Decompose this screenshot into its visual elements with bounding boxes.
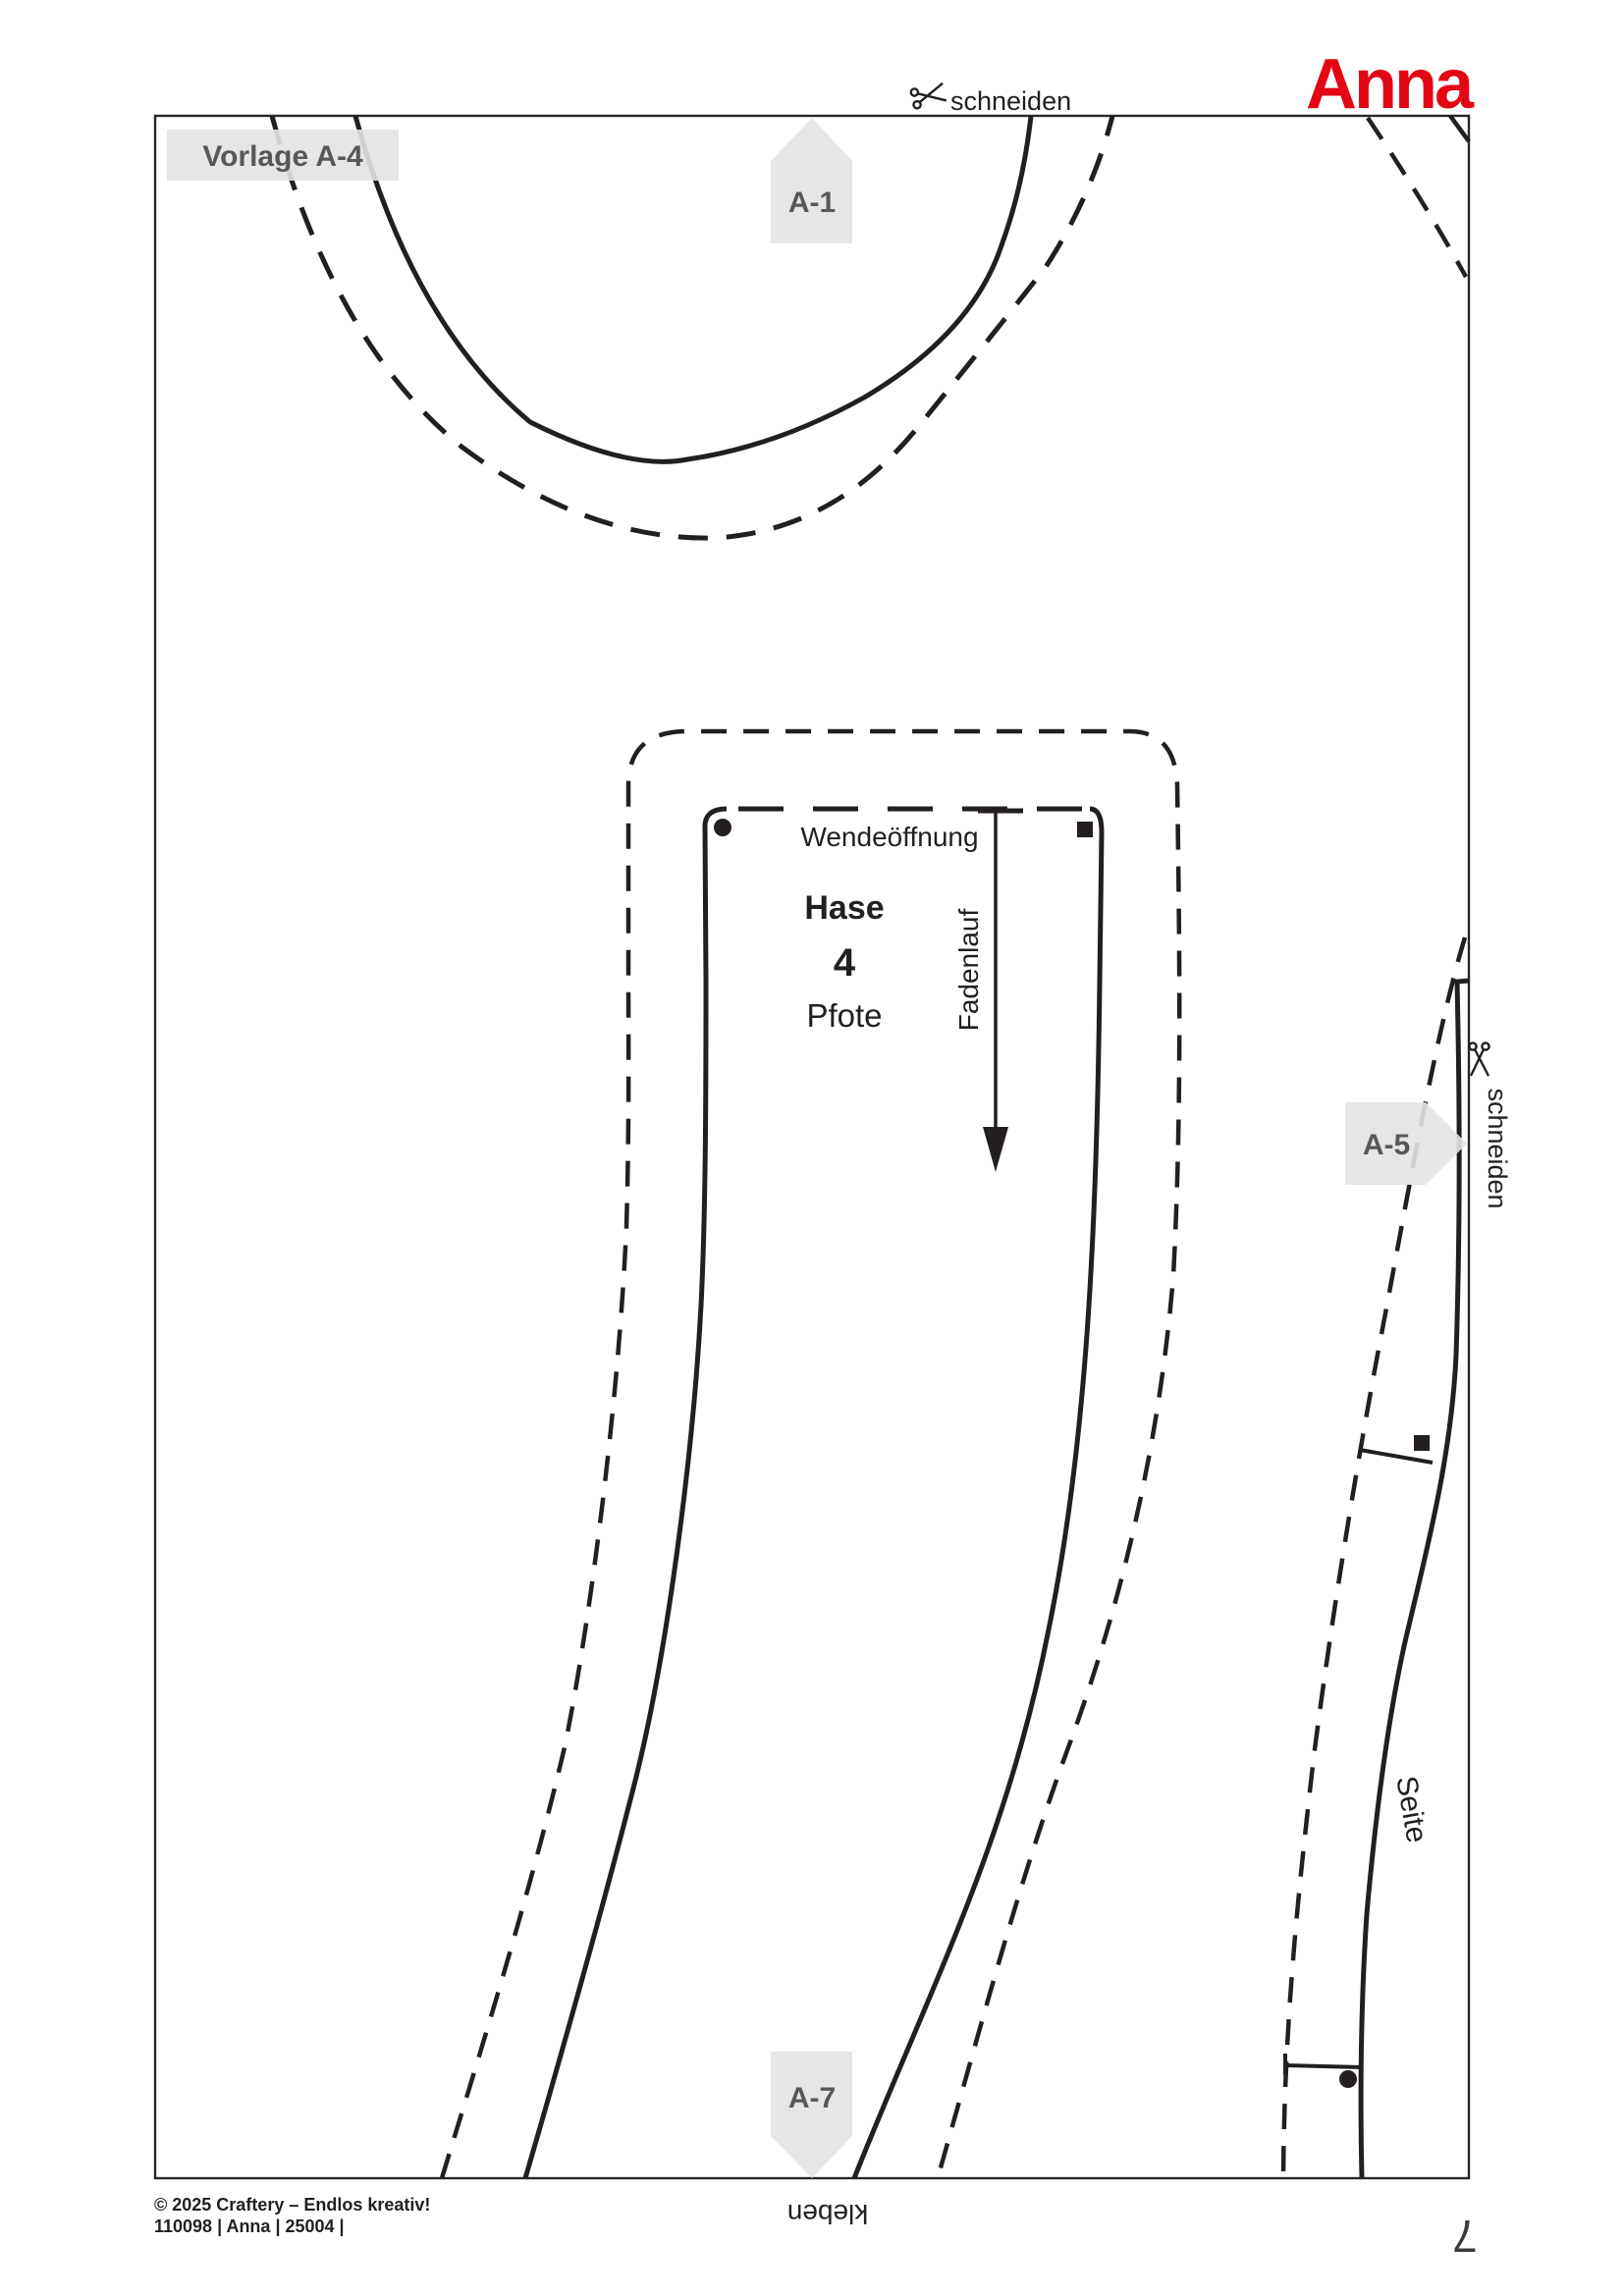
piece-name-label: Pfote — [806, 997, 882, 1034]
pattern-sheet: Vorlage A-4 A-1 A-5 A-7 schneiden Anna W… — [0, 0, 1624, 2296]
marker-a7-arrow — [771, 2052, 852, 2178]
paw-square-marker — [1077, 822, 1093, 837]
cut-label-top: schneiden — [950, 86, 1071, 116]
paw-seam-line — [442, 731, 1179, 2178]
page-number: 7 — [1452, 2211, 1478, 2262]
marker-a5-label: A-5 — [1363, 1129, 1410, 1161]
brand-logo: Anna — [1306, 45, 1475, 124]
opening-label: Wendeöffnung — [800, 822, 978, 852]
template-label: Vorlage A-4 — [202, 140, 363, 173]
side-dot-marker — [1339, 2070, 1357, 2088]
paw-dot-marker — [714, 819, 731, 836]
piece-number-label: 4 — [834, 941, 856, 985]
footer-product-code: 110098 | Anna | 25004 | — [154, 2216, 345, 2236]
corner-piece-seam-line — [1368, 118, 1466, 277]
side-upper-notch-line — [1360, 1450, 1433, 1463]
scissors-icon-right — [1469, 1042, 1489, 1076]
cut-label-right: schneiden — [1483, 1088, 1512, 1208]
footer-copyright: © 2025 Craftery – Endlos kreativ! — [154, 2195, 430, 2215]
glue-label: kleben — [787, 2199, 869, 2229]
pattern-canvas: Vorlage A-4 A-1 A-5 A-7 schneiden Anna W… — [0, 0, 1624, 2296]
marker-a1-label: A-1 — [788, 187, 836, 219]
marker-a1-arrow — [771, 118, 852, 243]
grainline-label: Fadenlauf — [953, 909, 984, 1032]
piece-animal-label: Hase — [804, 889, 884, 927]
scissors-icon-top — [910, 82, 947, 109]
side-square-marker — [1414, 1435, 1430, 1451]
side-lower-notch-line — [1285, 2065, 1362, 2067]
marker-a7-label: A-7 — [788, 2082, 836, 2114]
side-label: Seite — [1389, 1774, 1433, 1845]
paw-cut-line-left — [525, 809, 727, 2178]
grainline-arrow-head — [983, 1127, 1008, 1172]
